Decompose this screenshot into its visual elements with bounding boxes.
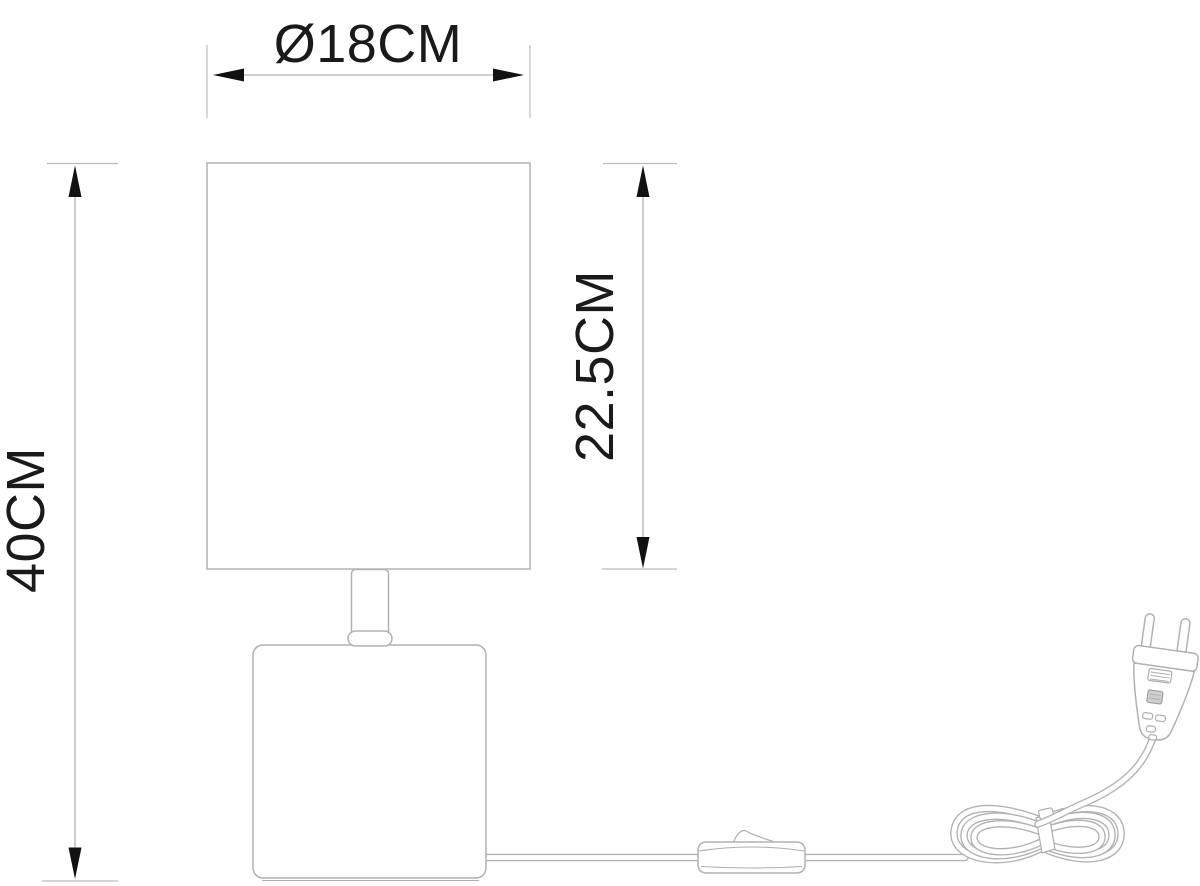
dimension-label-diameter: Ø18CM [274,14,463,74]
lamp-neck [352,570,389,636]
dimension-shade-height: 22.5CM [565,164,677,570]
arrowhead-down [69,848,82,880]
plug-pin-right [1177,618,1191,655]
plug-pin-left [1141,613,1155,650]
inline-switch [698,831,805,873]
eu-plug [1122,612,1200,744]
lamp-base [253,645,486,878]
diagram-canvas: Ø18CM 40CM 22.5CM [0,0,1200,886]
arrowhead-right [493,69,524,82]
dimension-shade-diameter: Ø18CM [207,14,530,118]
arrowhead-up [69,166,82,198]
dimension-label-shade-height: 22.5CM [565,270,625,462]
lamp-shade [207,163,530,569]
cord-coil [954,740,1152,860]
lamp-dimension-diagram: Ø18CM 40CM 22.5CM [0,0,1200,886]
dimension-total-height: 40CM [0,164,118,882]
lamp [207,163,530,881]
lamp-neck-flange [348,631,392,646]
plug-vent-grille [1148,668,1172,683]
dimension-label-total-height: 40CM [0,447,56,593]
arrowhead-down [637,537,650,569]
arrowhead-left [213,69,244,82]
arrowhead-up [637,166,650,198]
plug-label-plate [1147,690,1164,704]
